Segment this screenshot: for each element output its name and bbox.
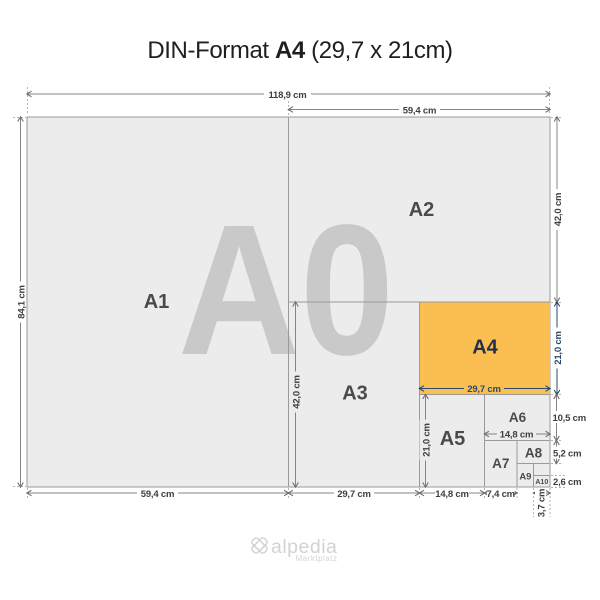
svg-text:14,8 cm: 14,8 cm [435,489,468,500]
svg-text:2,6 cm: 2,6 cm [553,477,581,488]
svg-text:A5: A5 [440,428,466,450]
svg-text:A8: A8 [525,446,543,461]
svg-text:10,5 cm: 10,5 cm [553,413,586,424]
svg-text:118,9 cm: 118,9 cm [268,90,306,101]
svg-text:5,2 cm: 5,2 cm [553,449,581,460]
svg-text:A7: A7 [492,456,509,471]
svg-text:A4: A4 [472,337,498,359]
svg-text:A2: A2 [409,199,435,221]
svg-text:3,7 cm: 3,7 cm [537,489,548,517]
svg-text:29,7 cm: 29,7 cm [467,384,500,395]
svg-text:42,0 cm: 42,0 cm [292,375,303,408]
svg-text:7,4 cm: 7,4 cm [487,489,515,500]
svg-text:A9: A9 [519,472,531,483]
svg-text:59,4 cm: 59,4 cm [403,106,436,117]
svg-text:A1: A1 [144,291,170,313]
svg-text:DIN-Format A4 (29,7 x 21cm): DIN-Format A4 (29,7 x 21cm) [147,37,452,64]
svg-text:14,8 cm: 14,8 cm [500,430,533,441]
svg-text:21,0 cm: 21,0 cm [422,423,433,456]
svg-text:Marktplatz: Marktplatz [296,554,338,563]
svg-text:84,1 cm: 84,1 cm [17,285,28,318]
svg-text:59,4 cm: 59,4 cm [141,489,174,500]
svg-text:A3: A3 [342,383,368,405]
svg-text:A6: A6 [509,410,527,425]
svg-text:42,0 cm: 42,0 cm [553,193,564,226]
svg-text:21,0 cm: 21,0 cm [553,331,564,364]
svg-text:A0: A0 [178,187,394,394]
svg-text:A10: A10 [535,479,548,486]
svg-text:29,7 cm: 29,7 cm [337,489,370,500]
